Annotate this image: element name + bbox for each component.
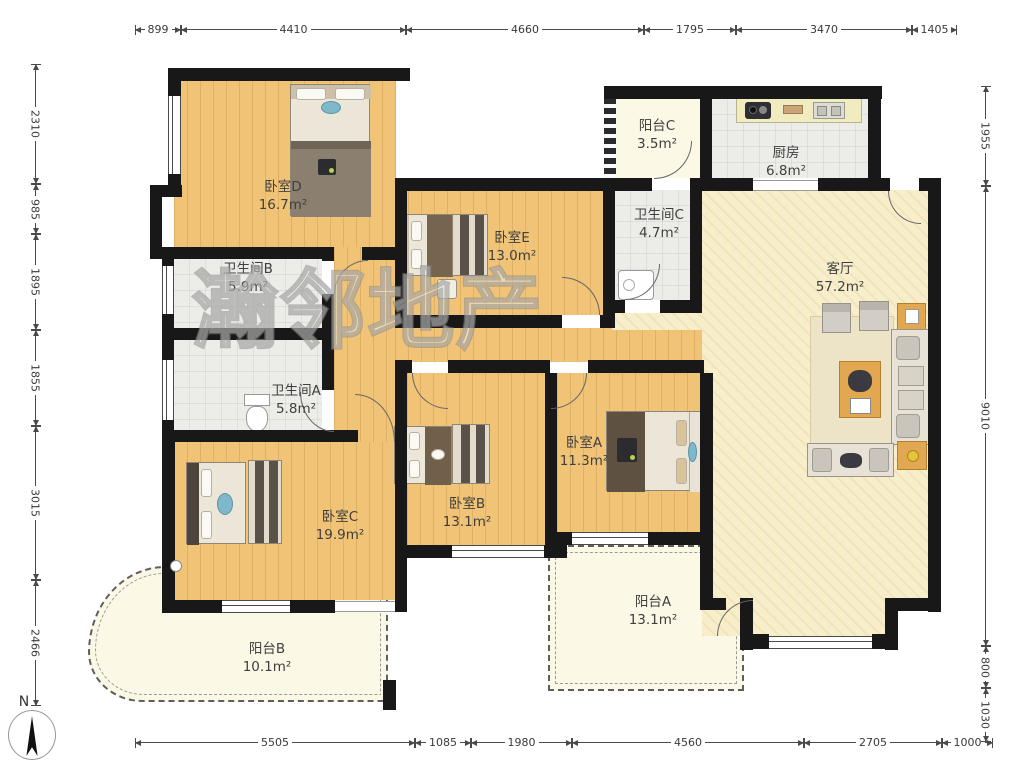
dim-left-5: 2466 bbox=[28, 580, 42, 706]
room-label-bedroom-e: 卧室E13.0m² bbox=[488, 229, 537, 265]
coffee-table bbox=[839, 361, 881, 418]
nightstand-bedroom-e bbox=[437, 279, 457, 299]
side-table-bottom bbox=[897, 441, 927, 470]
room-label-balcony-a: 阳台A13.1m² bbox=[629, 593, 678, 629]
dim-right-1: 9010 bbox=[978, 186, 992, 646]
compass-icon bbox=[8, 710, 56, 760]
wall bbox=[362, 247, 396, 260]
wall bbox=[700, 373, 713, 532]
room-label-balcony-c: 阳台C3.5m² bbox=[637, 117, 677, 153]
wall bbox=[868, 178, 890, 191]
floor-plan-page: 卧室D16.7m² 卧室E13.0m² 阳台C3.5m² 厨房6.8m² 卫生间… bbox=[0, 0, 1019, 768]
opening bbox=[335, 601, 395, 612]
wall bbox=[818, 178, 868, 191]
wall bbox=[168, 68, 410, 81]
bed-bedroom-c bbox=[186, 462, 246, 544]
wall bbox=[290, 600, 335, 613]
window bbox=[769, 636, 872, 649]
balcony-b-joint bbox=[170, 560, 182, 572]
dim-left-1: 985 bbox=[28, 184, 42, 234]
dim-bottom-2: 1980 bbox=[471, 735, 572, 749]
wall bbox=[383, 680, 396, 710]
window bbox=[162, 360, 174, 420]
dim-top-4: 3470 bbox=[736, 22, 912, 36]
wall bbox=[162, 430, 358, 442]
wall bbox=[448, 360, 550, 373]
dim-top-5: 1405 bbox=[912, 22, 957, 36]
wall bbox=[603, 300, 625, 313]
sofa bbox=[891, 329, 931, 445]
side-table-top bbox=[897, 303, 926, 330]
floor-corridor bbox=[395, 328, 704, 362]
wall-balcony-c bbox=[604, 88, 616, 178]
room-label-bedroom-c: 卧室C19.9m² bbox=[316, 508, 365, 544]
wall bbox=[702, 178, 753, 191]
wardrobe-bedroom-e bbox=[452, 214, 488, 276]
dim-top-3: 1795 bbox=[644, 22, 736, 36]
bench-sofa bbox=[807, 443, 894, 477]
dim-left-2: 1895 bbox=[28, 234, 42, 330]
dim-left-0: 2310 bbox=[28, 64, 42, 184]
wall bbox=[544, 545, 567, 558]
wall bbox=[751, 634, 769, 649]
wall bbox=[690, 178, 702, 313]
dim-bottom-1: 1085 bbox=[415, 735, 471, 749]
dim-right-0: 1955 bbox=[978, 86, 992, 186]
wall bbox=[395, 178, 615, 191]
floor-corridor-cream bbox=[612, 313, 704, 330]
wall bbox=[660, 300, 702, 313]
dim-bottom-4: 2705 bbox=[804, 735, 942, 749]
wall bbox=[395, 545, 452, 558]
room-label-living-room: 客厅57.2m² bbox=[816, 260, 865, 296]
wall bbox=[162, 600, 222, 613]
room-label-bathroom-b: 卫生间B5.9m² bbox=[223, 260, 273, 296]
room-label-kitchen: 厨房6.8m² bbox=[766, 144, 806, 180]
wall bbox=[322, 340, 334, 390]
dim-top-0: 899 bbox=[135, 22, 181, 36]
room-label-balcony-b: 阳台B10.1m² bbox=[243, 640, 292, 676]
wall bbox=[700, 598, 726, 610]
wall bbox=[395, 360, 412, 373]
bed-bedroom-a bbox=[606, 411, 702, 491]
wall bbox=[162, 328, 334, 340]
wall bbox=[395, 315, 562, 328]
window bbox=[452, 545, 544, 558]
kitchen-counter bbox=[736, 97, 862, 123]
room-label-bedroom-b: 卧室B13.1m² bbox=[443, 495, 492, 531]
dim-left-4: 3015 bbox=[28, 426, 42, 580]
wall bbox=[692, 178, 702, 191]
wall bbox=[162, 442, 175, 608]
room-label-bathroom-c: 卫生间C4.7m² bbox=[634, 206, 684, 242]
armchair-1 bbox=[822, 303, 851, 333]
wall bbox=[615, 178, 652, 191]
wall bbox=[162, 247, 334, 259]
dim-bottom-0: 5505 bbox=[135, 735, 415, 749]
room-label-bedroom-d: 卧室D16.7m² bbox=[259, 178, 308, 214]
wall bbox=[322, 247, 334, 261]
wall bbox=[395, 360, 407, 612]
window bbox=[572, 532, 648, 545]
compass-north-label: N bbox=[19, 694, 29, 710]
room-label-bedroom-a: 卧室A11.3m² bbox=[560, 434, 609, 470]
wardrobe-bedroom-b bbox=[452, 424, 490, 484]
wall bbox=[700, 86, 712, 191]
wardrobe-bedroom-c bbox=[248, 460, 282, 544]
wall bbox=[604, 86, 882, 99]
dim-bottom-3: 4560 bbox=[572, 735, 804, 749]
wall bbox=[588, 360, 704, 373]
wall bbox=[872, 634, 887, 649]
exterior-notch bbox=[898, 611, 930, 650]
dim-left-3: 1855 bbox=[28, 330, 42, 426]
window bbox=[162, 266, 174, 314]
window bbox=[168, 96, 181, 174]
wall bbox=[928, 178, 941, 612]
room-label-bathroom-a: 卫生间A5.8m² bbox=[271, 382, 321, 418]
opening-kitchen bbox=[753, 180, 818, 191]
wall bbox=[395, 178, 407, 328]
dim-top-2: 4660 bbox=[406, 22, 644, 36]
armchair-2 bbox=[859, 301, 889, 331]
dim-right-2: 800 bbox=[978, 646, 992, 688]
toilet-bathroom-a bbox=[244, 394, 270, 434]
dim-right-3: 1030 bbox=[978, 688, 992, 742]
window bbox=[222, 600, 290, 613]
dim-top-1: 4410 bbox=[181, 22, 406, 36]
wall bbox=[868, 86, 881, 191]
